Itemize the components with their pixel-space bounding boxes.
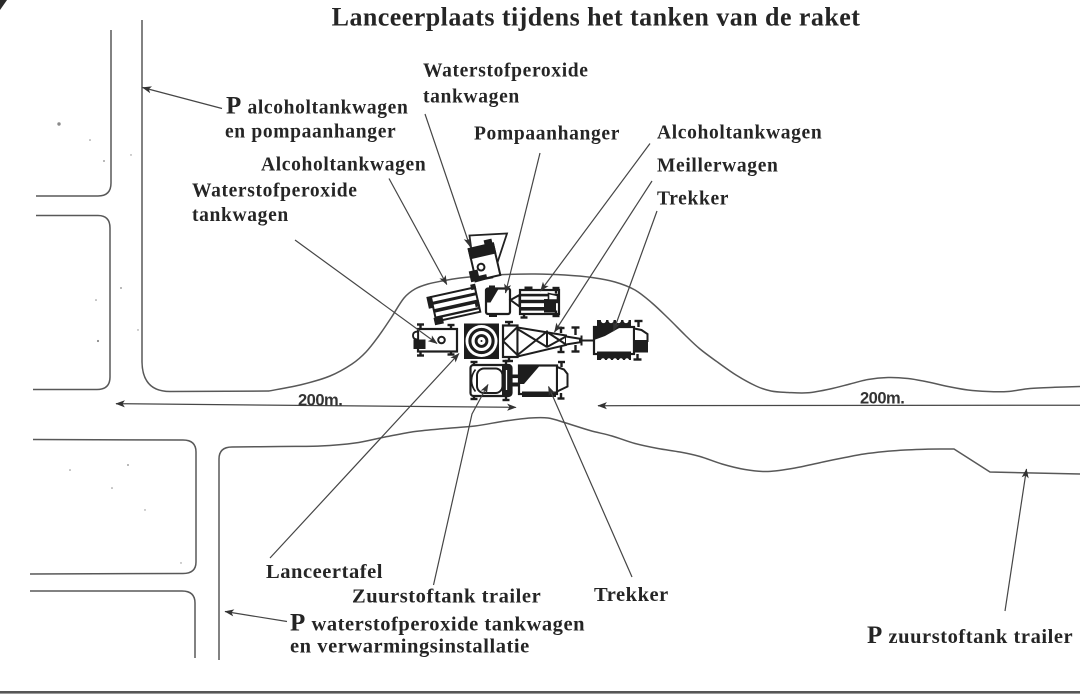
svg-text:Trekker: Trekker [594,584,669,606]
svg-text:200m.: 200m. [298,392,342,410]
svg-text:P alcoholtankwagen: P alcoholtankwagen [226,93,408,120]
svg-text:Alcoholtankwagen: Alcoholtankwagen [657,123,822,144]
svg-text:P zuurstoftank trailer: P zuurstoftank trailer [867,622,1073,649]
svg-text:Trekker: Trekker [657,189,729,210]
svg-text:tankwagen: tankwagen [423,87,520,108]
svg-text:Lanceerplaats tijdens het tank: Lanceerplaats tijdens het tanken van de … [332,3,861,32]
svg-text:Meillerwagen: Meillerwagen [657,156,779,177]
svg-text:Zuurstoftank trailer: Zuurstoftank trailer [352,586,541,608]
svg-text:tankwagen: tankwagen [192,205,289,226]
svg-text:Waterstofperoxide: Waterstofperoxide [423,61,589,82]
svg-text:Lanceertafel: Lanceertafel [266,561,383,583]
svg-text:en pompaanhanger: en pompaanhanger [225,122,396,143]
svg-text:en verwarmingsinstallatie: en verwarmingsinstallatie [290,636,530,658]
svg-text:Waterstofperoxide: Waterstofperoxide [192,181,358,202]
svg-text:200m.: 200m. [860,390,904,408]
svg-text:Alcoholtankwagen: Alcoholtankwagen [261,155,426,176]
svg-text:Pompaanhanger: Pompaanhanger [474,124,620,145]
svg-text:P waterstofperoxide tankwagen: P waterstofperoxide tankwagen [290,610,585,637]
